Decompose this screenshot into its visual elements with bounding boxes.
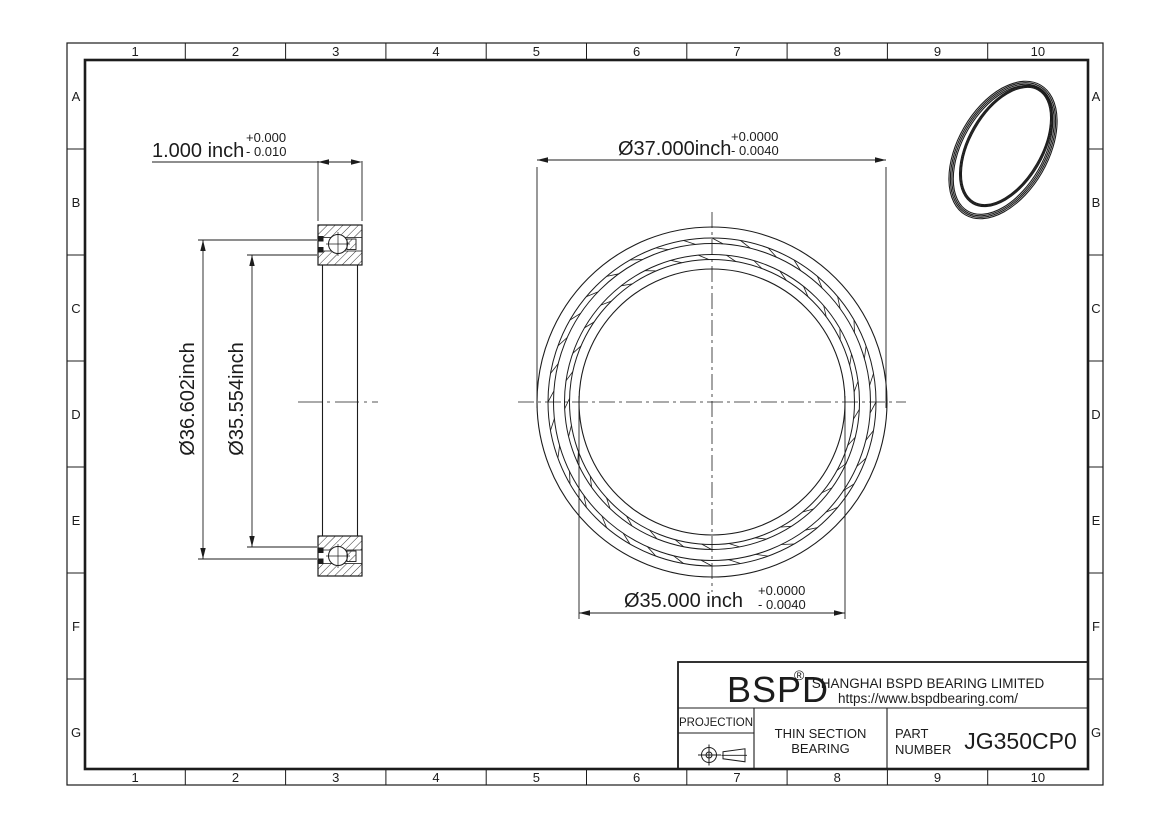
grid-col-label-top: 1	[120, 43, 150, 61]
od-dim-text: Ø37.000inch	[618, 139, 731, 159]
drawing-sheet: 1.000 inch +0.000 - 0.010 Ø36.602inch Ø3…	[0, 0, 1170, 827]
projection-symbol-icon	[698, 745, 747, 766]
section-width-tol-plus: +0.000	[246, 131, 286, 144]
section-block-top	[318, 225, 362, 265]
grid-col-label-top: 9	[923, 43, 953, 61]
grid-col-label-bottom: 8	[822, 768, 852, 786]
grid-col-label-top: 5	[521, 43, 551, 61]
grid-row-label-left: A	[61, 87, 91, 105]
product-type-line2: BEARING	[754, 742, 887, 755]
grid-row-label-right: G	[1081, 723, 1111, 741]
grid-row-label-right: D	[1081, 405, 1111, 423]
grid-row-label-right: F	[1081, 617, 1111, 635]
grid-col-label-bottom: 10	[1023, 768, 1053, 786]
cage	[347, 551, 356, 562]
cage	[347, 239, 356, 250]
product-type-line1: THIN SECTION	[754, 727, 887, 740]
grid-col-label-bottom: 5	[521, 768, 551, 786]
grid-row-label-left: G	[61, 723, 91, 741]
seal	[319, 559, 324, 565]
part-number-label-line2: NUMBER	[895, 743, 951, 756]
arrowhead	[249, 536, 254, 547]
grid-col-label-bottom: 6	[622, 768, 652, 786]
grid-row-label-right: A	[1081, 87, 1111, 105]
arrowhead	[200, 240, 205, 251]
grid-col-label-bottom: 4	[421, 768, 451, 786]
seal	[319, 548, 324, 554]
company-website: https://www.bspdbearing.com/	[800, 692, 1056, 706]
inner-race-dim-text: Ø35.554inch	[227, 339, 249, 459]
grid-row-label-left: E	[61, 511, 91, 529]
grid-col-label-top: 4	[421, 43, 451, 61]
arrowhead	[579, 610, 590, 615]
od-dimension	[537, 157, 886, 408]
seal	[319, 247, 324, 253]
arrowhead	[351, 159, 362, 164]
projection-label: PROJECTION	[678, 718, 754, 730]
arrowhead	[875, 157, 886, 162]
grid-col-label-bottom: 7	[722, 768, 752, 786]
section-width-tol-minus: - 0.010	[246, 145, 286, 158]
grid-col-label-bottom: 3	[321, 768, 351, 786]
od-tol-plus: +0.0000	[731, 130, 778, 143]
grid-row-label-right: E	[1081, 511, 1111, 529]
inner-race-dimension	[247, 255, 317, 547]
arrowhead	[249, 255, 254, 266]
arrowhead	[318, 159, 329, 164]
grid-row-label-left: F	[61, 617, 91, 635]
grid-ticks-bottom	[185, 769, 987, 785]
front-view	[518, 157, 906, 619]
grid-row-label-right: B	[1081, 193, 1111, 211]
seal	[319, 236, 324, 242]
grid-col-label-bottom: 9	[923, 768, 953, 786]
arrowhead	[200, 548, 205, 559]
grid-ticks-top	[185, 43, 987, 60]
arrowhead	[537, 157, 548, 162]
grid-col-label-top: 7	[722, 43, 752, 61]
part-number-label-line1: PART	[895, 727, 928, 740]
grid-row-label-left: C	[61, 299, 91, 317]
outer-race-dimension	[198, 240, 317, 559]
od-tol-minus: - 0.0040	[731, 144, 779, 157]
section-block-bottom	[318, 536, 362, 576]
grid-row-label-right: C	[1081, 299, 1111, 317]
grid-col-label-bottom: 1	[120, 768, 150, 786]
outer-race-dim-text: Ø36.602inch	[178, 339, 200, 459]
part-number-value: JG350CP0	[958, 730, 1083, 753]
arrowhead	[834, 610, 845, 615]
grid-row-label-left: B	[61, 193, 91, 211]
grid-col-label-top: 6	[622, 43, 652, 61]
width-dimension	[152, 159, 362, 221]
grid-col-label-bottom: 2	[220, 768, 250, 786]
bore-tol-minus: - 0.0040	[758, 598, 806, 611]
grid-col-label-top: 10	[1023, 43, 1053, 61]
isometric-view	[927, 63, 1080, 238]
company-name: SHANGHAI BSPD BEARING LIMITED	[800, 677, 1056, 691]
grid-col-label-top: 8	[822, 43, 852, 61]
grid-col-label-top: 3	[321, 43, 351, 61]
bore-tol-plus: +0.0000	[758, 584, 805, 597]
section-width-dim-text: 1.000 inch	[152, 141, 244, 161]
bore-dim-text: Ø35.000 inch	[624, 591, 743, 611]
grid-row-label-left: D	[61, 405, 91, 423]
grid-col-label-top: 2	[220, 43, 250, 61]
